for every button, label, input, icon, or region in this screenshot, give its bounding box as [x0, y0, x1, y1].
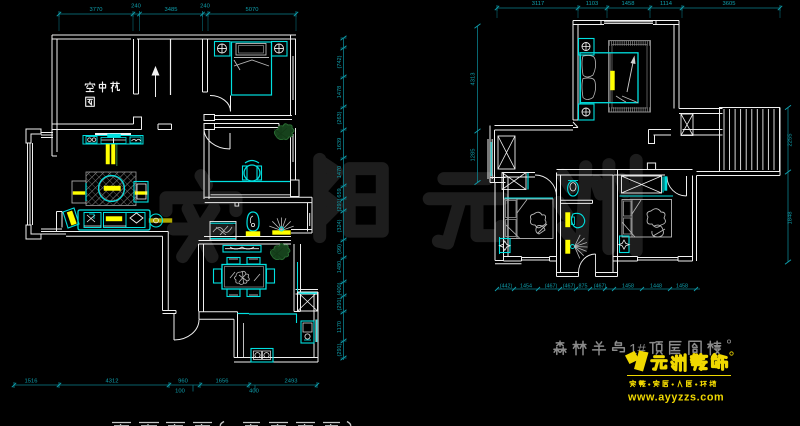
svg-text:1639: 1639 [337, 138, 343, 150]
svg-text:2255: 2255 [788, 134, 794, 147]
svg-text:(291): (291) [337, 198, 343, 211]
svg-text:1454: 1454 [520, 284, 532, 290]
svg-text:1458: 1458 [676, 284, 688, 290]
svg-text:875: 875 [579, 284, 588, 290]
svg-text:(263): (263) [337, 111, 343, 124]
svg-text:(467): (467) [545, 284, 558, 290]
svg-text:(442): (442) [500, 284, 513, 290]
svg-text:3770: 3770 [90, 7, 103, 13]
svg-text:1103: 1103 [586, 1, 598, 7]
svg-text:1448: 1448 [650, 284, 662, 290]
svg-text:1516: 1516 [25, 379, 38, 385]
svg-text:1114: 1114 [660, 1, 673, 7]
svg-text:(291): (291) [337, 343, 343, 356]
svg-text:3117: 3117 [532, 1, 544, 7]
svg-text:100: 100 [175, 389, 185, 395]
svg-text:1170: 1170 [337, 321, 343, 333]
svg-text:960: 960 [178, 379, 188, 385]
svg-text:1478: 1478 [337, 86, 343, 98]
svg-text:659: 659 [337, 188, 343, 197]
svg-text:(467): (467) [563, 284, 576, 290]
svg-text:1470: 1470 [337, 166, 343, 178]
svg-text:1480: 1480 [337, 261, 343, 273]
svg-text:1458: 1458 [622, 1, 635, 7]
svg-text:3485: 3485 [165, 7, 178, 13]
svg-text:400: 400 [249, 389, 259, 395]
svg-text:(324): (324) [337, 219, 343, 232]
svg-text:(99): (99) [337, 244, 343, 254]
svg-text:www.ayyzzs.com: www.ayyzzs.com [627, 392, 724, 404]
svg-text:(291): (291) [337, 297, 343, 310]
svg-text:2493: 2493 [285, 379, 298, 385]
svg-text:1848: 1848 [788, 212, 794, 225]
svg-text:1656: 1656 [216, 379, 229, 385]
svg-text:(400): (400) [337, 282, 343, 295]
svg-text:5070: 5070 [246, 7, 259, 13]
svg-text:4312: 4312 [106, 379, 119, 385]
svg-text:4313: 4313 [471, 73, 477, 86]
svg-text:(467): (467) [594, 284, 607, 290]
svg-text:(742): (742) [337, 55, 343, 68]
svg-text:1458: 1458 [622, 284, 634, 290]
svg-text:240: 240 [131, 4, 141, 10]
svg-text:1285: 1285 [471, 149, 477, 162]
svg-text:3605: 3605 [723, 1, 736, 7]
svg-text:240: 240 [200, 4, 210, 10]
